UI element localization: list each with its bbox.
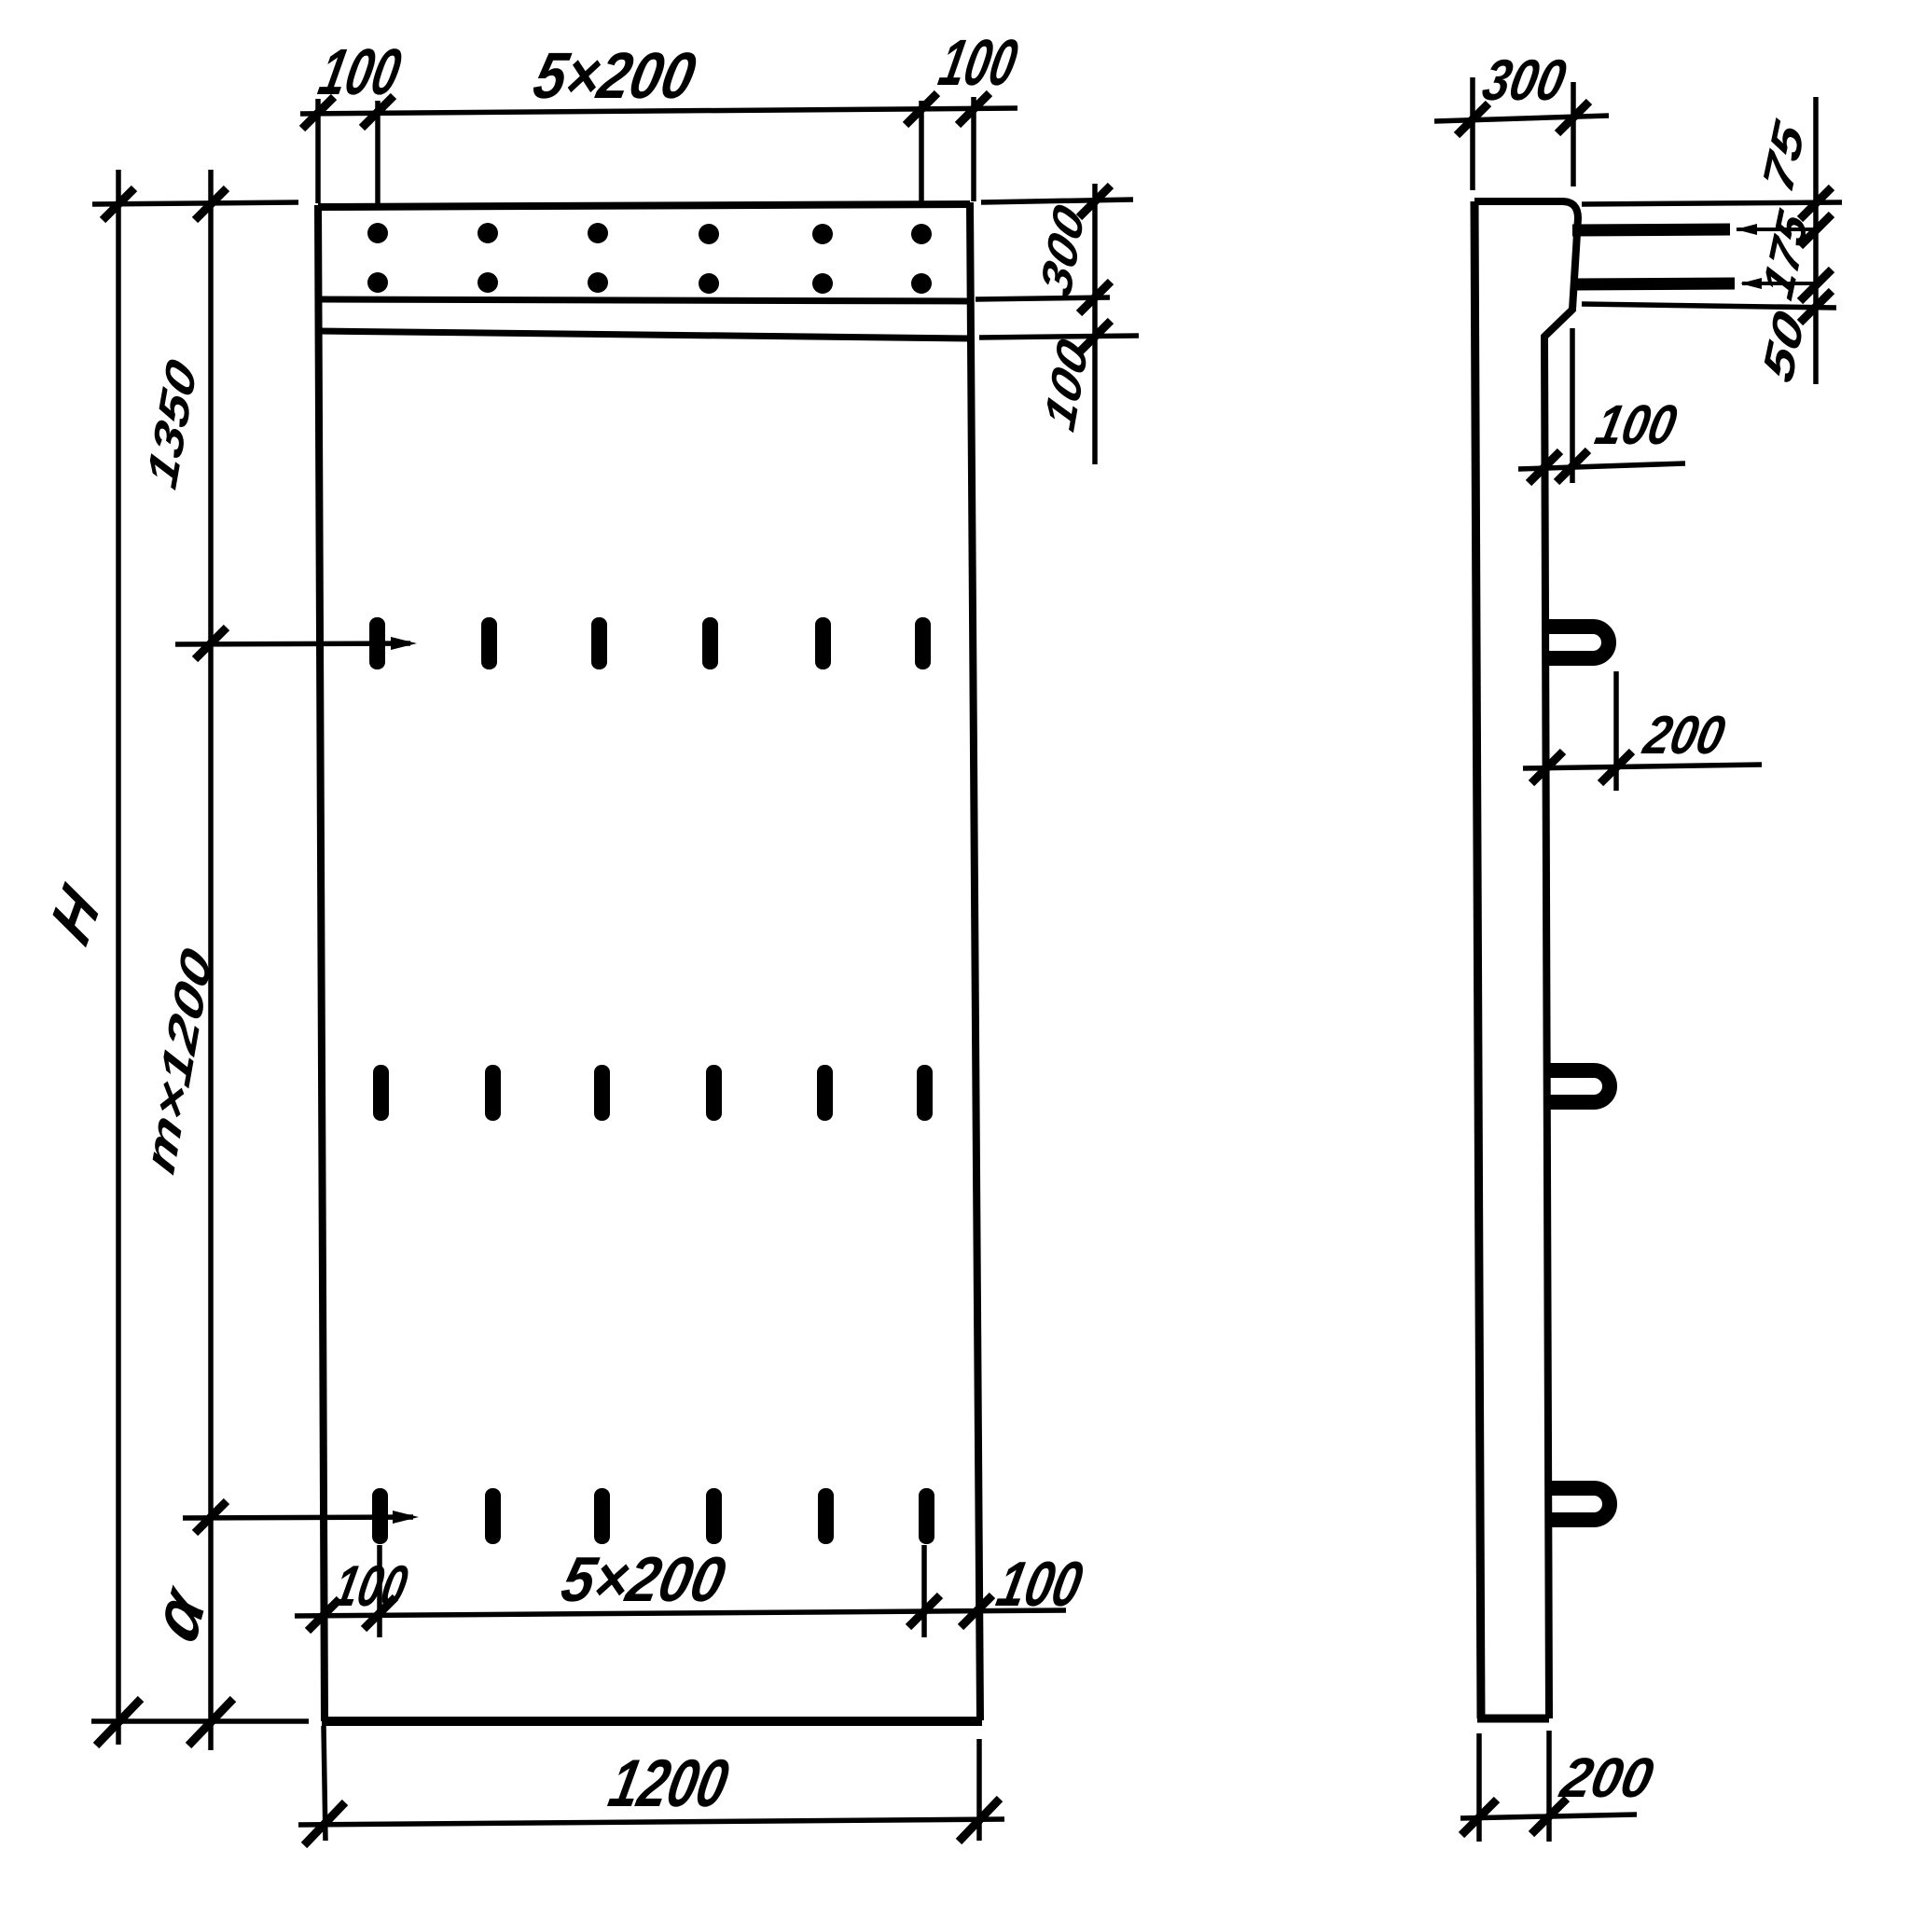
svg-text:200: 200 (1638, 706, 1730, 766)
svg-text:200: 200 (1555, 1746, 1658, 1809)
svg-text:1350: 1350 (139, 352, 206, 496)
svg-text:α: α (138, 1570, 219, 1654)
svg-text:1200: 1200 (603, 1746, 735, 1821)
svg-text:100: 100 (313, 35, 408, 108)
svg-text:H: H (39, 873, 113, 957)
svg-text:5×200: 5×200 (528, 39, 702, 112)
svg-text:5×200: 5×200 (556, 1544, 731, 1615)
svg-text:100: 100 (1590, 393, 1682, 456)
svg-text:100: 100 (934, 26, 1024, 99)
svg-text:300: 300 (1477, 48, 1571, 113)
svg-text:100: 100 (328, 1554, 413, 1619)
svg-text:75: 75 (1754, 113, 1814, 200)
svg-text:100: 100 (991, 1549, 1088, 1620)
